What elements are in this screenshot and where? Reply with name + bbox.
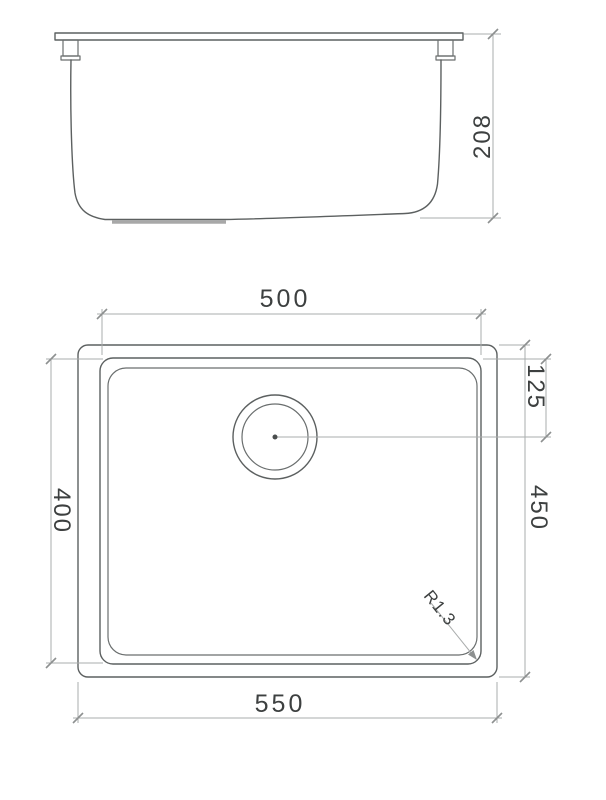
depth-dimension-label: 208 (469, 113, 496, 159)
bowl-inner-outline (108, 368, 477, 655)
depth-dimension: 208 (420, 29, 501, 223)
overall-height-label: 450 (525, 485, 552, 531)
plan-view: 500 550 400 450 (46, 285, 552, 723)
drain-center-dot (273, 435, 278, 440)
corner-radius-callout: R1.3 (420, 587, 477, 660)
corner-radius-label: R1.3 (420, 587, 460, 630)
bowl-outline (100, 358, 481, 664)
bowl-width-label: 500 (260, 285, 311, 313)
rim-outline (78, 345, 497, 677)
overall-width-label: 550 (255, 690, 306, 718)
bowl-height-label: 400 (48, 488, 75, 534)
side-elevation-view: 208 (55, 29, 501, 223)
sink-technical-drawing: 208 500 550 (0, 0, 606, 800)
overall-width-dimension: 550 (73, 682, 502, 723)
drain (233, 395, 551, 479)
sink-rim-profile (55, 33, 463, 40)
mounting-clip-right (436, 40, 455, 60)
mounting-clip-left (61, 40, 80, 60)
drain-offset-dimension: 125 (483, 354, 551, 442)
bowl-height-dimension: 400 (46, 354, 103, 668)
sink-technical-drawing-page: 208 500 550 (0, 0, 606, 800)
drain-offset-label: 125 (522, 364, 549, 410)
sink-body-outline (71, 60, 441, 220)
